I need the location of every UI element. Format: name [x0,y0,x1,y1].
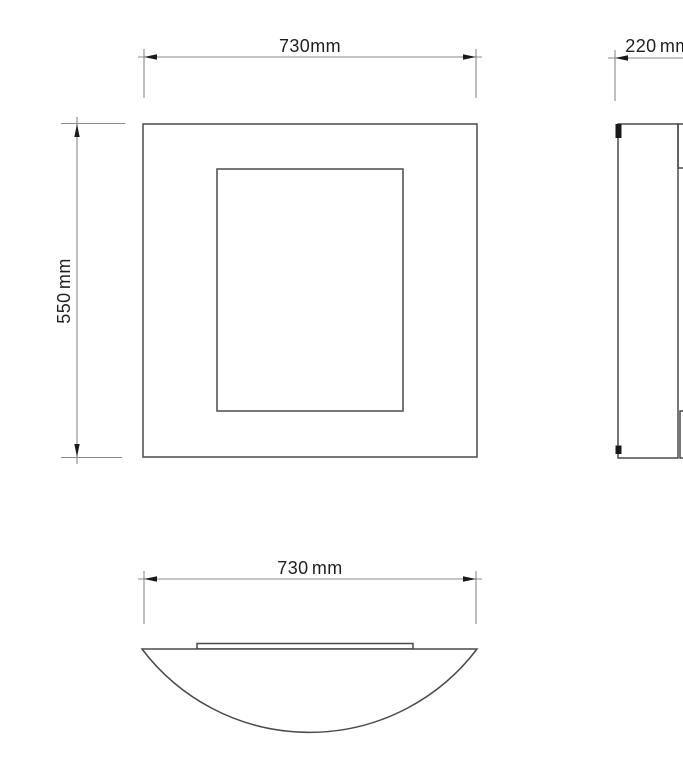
arrowhead-left-icon [144,54,157,59]
dimension-label-front-height: 550 mm [54,258,74,323]
front-inner-panel [217,169,403,411]
arrowhead-right-icon [463,54,476,59]
bottom-view [142,644,477,733]
side-view [616,124,683,458]
dimension-label-side-depth: 220 mm [625,36,683,56]
dimension-bottom-width: 730 mm [138,558,482,624]
dimension-side-depth: 220 mm [608,36,683,101]
arrowhead-left-icon [144,576,157,581]
front-outer-panel [143,124,477,457]
bottom-mount-plate [197,644,413,650]
dimension-label-bottom-width: 730 mm [277,558,342,578]
technical-drawing-sheet: 730mm 550 mm 220 mm [40,16,683,745]
arrowhead-left-icon [615,55,628,60]
front-view [143,124,477,457]
arrowhead-down-icon [74,444,79,457]
dimension-label-front-width: 730mm [279,36,341,56]
side-top-bracket [678,124,683,168]
dimension-front-width: 730mm [138,36,482,98]
side-body [618,124,678,458]
side-bottom-mount-tab [616,446,622,455]
arrowhead-right-icon [463,576,476,581]
dimension-front-height: 550 mm [54,117,125,464]
arrowhead-up-icon [74,124,79,137]
side-top-mount-tab [616,124,622,138]
bottom-curved-diffuser [142,649,477,732]
dimension-drawing-canvas: 730mm 550 mm 220 mm [40,16,683,745]
